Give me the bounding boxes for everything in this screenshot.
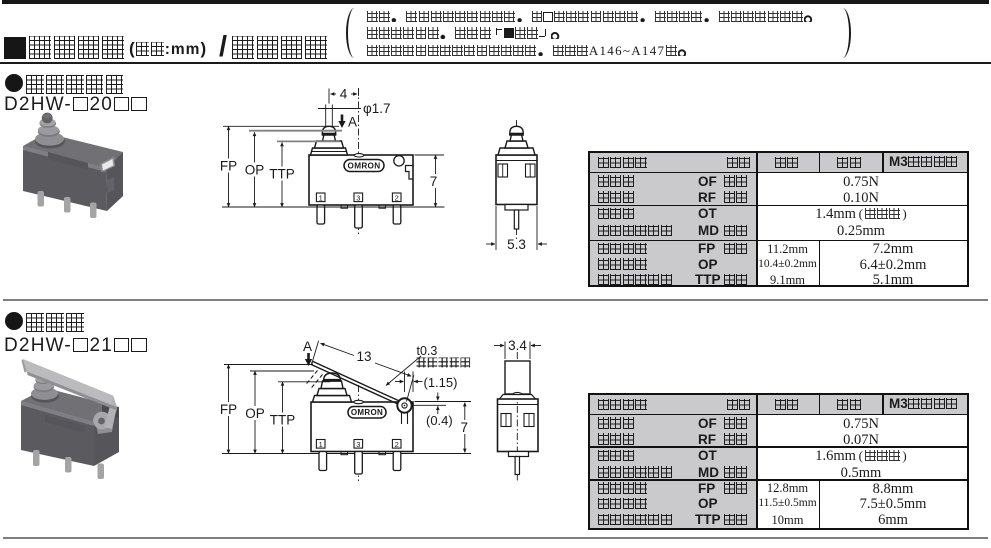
svg-text:(1.15): (1.15) (424, 375, 458, 390)
svg-text:7: 7 (461, 420, 469, 435)
svg-text:2: 2 (395, 440, 399, 449)
svg-text:φ1.7: φ1.7 (363, 101, 391, 116)
svg-text:7: 7 (430, 174, 438, 189)
svg-text:3: 3 (356, 193, 360, 202)
svg-text:3.4: 3.4 (508, 338, 527, 353)
svg-text:4: 4 (340, 87, 348, 102)
svg-text:OP: OP (245, 163, 265, 178)
svg-text:A: A (348, 115, 357, 130)
svg-text:A: A (303, 339, 312, 354)
svg-text:(0.4): (0.4) (426, 413, 453, 428)
svg-text:OP: OP (245, 406, 265, 421)
svg-text:TTP: TTP (269, 167, 295, 182)
svg-text:1: 1 (319, 193, 323, 202)
svg-text:FP: FP (220, 402, 237, 417)
svg-text:13: 13 (356, 349, 371, 364)
svg-text:OMRON: OMRON (351, 408, 383, 417)
svg-text:TTP: TTP (270, 413, 296, 428)
svg-text:1: 1 (319, 440, 323, 449)
svg-text:t0.3: t0.3 (417, 344, 438, 358)
svg-text:OMRON: OMRON (348, 162, 381, 171)
svg-text:3: 3 (356, 440, 360, 449)
svg-text:5.3: 5.3 (507, 237, 526, 252)
svg-text:FP: FP (220, 159, 237, 174)
svg-text:2: 2 (395, 193, 399, 202)
